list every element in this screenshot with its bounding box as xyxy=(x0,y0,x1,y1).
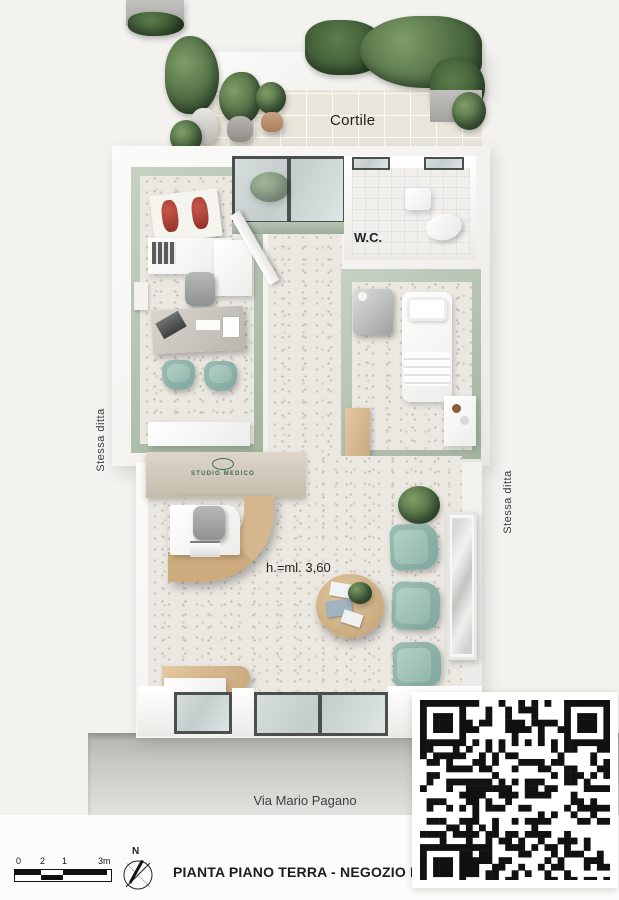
clipboard-icon xyxy=(222,316,240,338)
waiting-plant-icon xyxy=(398,486,440,524)
small-poster-icon xyxy=(134,282,148,310)
scale-bar: 0 2 1 3m xyxy=(14,856,124,886)
artwork-abstract xyxy=(452,518,472,654)
wc-transom-window-2 xyxy=(424,157,464,170)
office-low-cabinet xyxy=(148,422,250,446)
scale-tick-1: 2 xyxy=(40,856,45,866)
scale-tick-0: 0 xyxy=(16,856,21,866)
reception-chair xyxy=(193,506,225,540)
scale-bar-strip xyxy=(14,869,112,882)
storefront-pier-2 xyxy=(232,688,254,736)
armchair-3 xyxy=(393,642,442,689)
floor-plan-rendering: Via Mario Pagano Cortile xyxy=(0,0,619,900)
ceiling-height-label: h.=ml. 3,60 xyxy=(266,560,331,575)
plant-behind-glass-icon xyxy=(250,172,290,202)
street-label: Via Mario Pagano xyxy=(235,793,375,808)
compass: N xyxy=(118,846,158,894)
visitor-chair-2 xyxy=(204,361,237,391)
exam-bed-blanket xyxy=(404,352,450,386)
storefront-pier-1 xyxy=(138,686,174,736)
table-plant-icon xyxy=(348,582,372,604)
entry-door-glass xyxy=(174,692,232,734)
logo-text: STUDIO MEDICO xyxy=(186,471,260,477)
compass-north-label: N xyxy=(132,846,139,857)
plan-title: PIANTA PIANO TERRA - NEGOZIO N. 3 xyxy=(173,864,437,880)
scale-tick-2: 1 xyxy=(62,856,67,866)
cart-bottle-icon-2 xyxy=(370,293,378,301)
exam-bed-pillow xyxy=(407,297,447,321)
desk-papers xyxy=(196,320,220,330)
binders-icon xyxy=(152,242,176,264)
sidetable-bottle-icon-2 xyxy=(460,416,469,425)
ivy-icon-4 xyxy=(452,92,486,130)
planter-plant-icon xyxy=(128,12,184,36)
exam-room-door xyxy=(345,408,370,458)
bush-plant-icon xyxy=(256,82,286,114)
qr-code xyxy=(412,692,618,888)
palm-plant-pot xyxy=(227,116,253,142)
reception-monitor-icon xyxy=(190,541,220,557)
sidetable-bottle-icon xyxy=(452,404,461,413)
scale-tick-3: 3m xyxy=(98,856,111,866)
right-neighbor-label: Stessa ditta xyxy=(502,457,514,547)
logo-emblem-icon xyxy=(212,458,234,470)
armchair-2 xyxy=(391,581,441,631)
olive-tree-icon xyxy=(165,36,219,114)
wc-label: W.C. xyxy=(354,230,382,245)
armchair-1 xyxy=(389,523,439,571)
cart-bottle-icon xyxy=(358,292,367,301)
storefront-mullion xyxy=(318,694,322,734)
visitor-chair-1 xyxy=(162,360,195,390)
office-sidetable xyxy=(214,240,252,296)
left-neighbor-label: Stessa ditta xyxy=(95,395,107,485)
doctor-chair xyxy=(185,272,215,306)
qr-code-pattern xyxy=(420,700,610,880)
sink-icon xyxy=(405,188,431,210)
courtyard-label: Cortile xyxy=(330,112,375,129)
anatomy-poster-icon xyxy=(149,188,222,244)
bush-plant-pot xyxy=(261,112,283,132)
wc-transom-window-1 xyxy=(352,157,390,170)
